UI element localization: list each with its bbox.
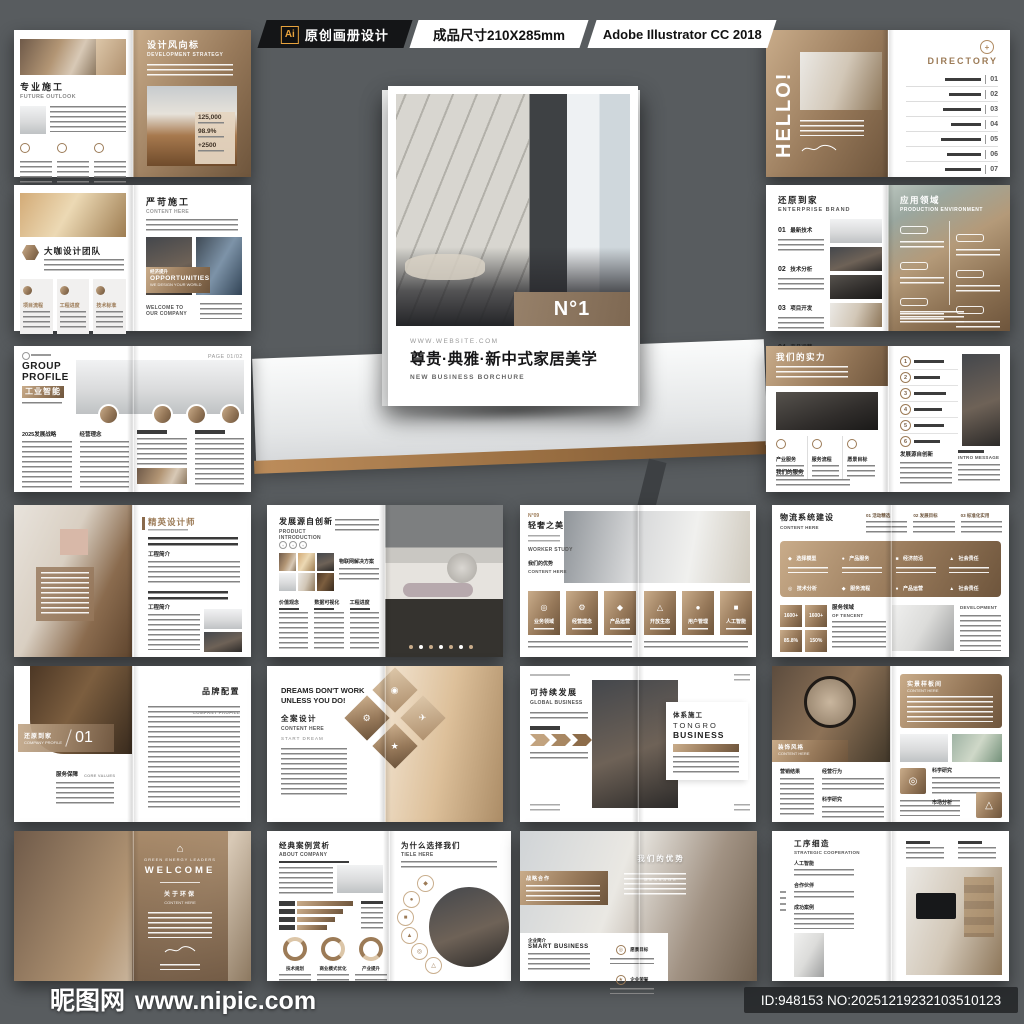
service-card: ⚙经营理念 xyxy=(566,591,598,635)
chart-bar xyxy=(297,917,335,922)
spread-smart-business: 战略合作 我们的优势 MESSAGE 企业简介 SMART BUSINESS ◎… xyxy=(520,831,757,981)
underline-bar xyxy=(279,861,349,863)
ribbon-original-design: Ai 原创画册设计 xyxy=(257,20,412,48)
item-number: 02 xyxy=(778,266,786,273)
system-title: 体系施工 xyxy=(673,709,741,719)
label-bar xyxy=(914,376,940,379)
text-lines xyxy=(842,567,882,573)
social-icon: ▲ xyxy=(949,586,954,592)
size-label: 成品尺寸210X285mm xyxy=(433,24,565,44)
feature-circle xyxy=(152,404,173,425)
dot xyxy=(429,645,433,649)
left-title-en: FUTURE OUTLOOK xyxy=(20,94,76,101)
group-title-line1: GROUP xyxy=(22,361,61,372)
exterior-photo xyxy=(952,734,1002,762)
star-icon: ★ xyxy=(391,740,399,751)
ai-icon: ■ xyxy=(734,603,739,612)
column-label: 愿景目标 xyxy=(847,456,878,463)
users-icon: ● xyxy=(696,603,701,612)
text-lines xyxy=(281,748,347,796)
spread-decor-style: 装饰风格 CONTENT HERE 营销结果 经营行为 科学研究 实景样板间 C… xyxy=(772,666,1009,822)
label-bar xyxy=(947,153,981,156)
tech-icon: ▲ xyxy=(949,556,954,562)
standard-icon xyxy=(96,286,105,295)
full-photo-page xyxy=(385,505,503,657)
style-banner-cn: 装饰风格 xyxy=(778,743,842,751)
label-bar xyxy=(941,138,981,141)
text-lines xyxy=(788,567,828,573)
text-lines xyxy=(147,64,233,78)
card-label: 用户管理 xyxy=(682,618,714,625)
text-lines xyxy=(198,150,224,154)
number-circle: 4 xyxy=(900,404,911,415)
panel-label: 技术分析 xyxy=(797,586,817,592)
text-lines xyxy=(572,628,592,632)
right-page-brown: 应用领域 PRODUCTION ENVIRONMENT xyxy=(888,185,1010,331)
model-icon: ◆ xyxy=(788,556,792,562)
spread-welcome: ⌂ GREEN ENERGY LEADERS WELCOME 关于环保 CONT… xyxy=(14,831,251,981)
text-lines xyxy=(822,778,884,792)
field-title-en: PRODUCTION ENVIRONMENT xyxy=(900,207,983,213)
sub-bar xyxy=(279,608,299,610)
label-bar xyxy=(958,841,982,844)
photo-grid xyxy=(279,553,334,591)
service-icon: ■ xyxy=(896,556,899,562)
text-lines xyxy=(900,462,952,484)
spread-elite-designer: 精英设计师 工程简介 工程简介 xyxy=(14,505,251,657)
stat-value: 85.8% xyxy=(784,638,798,644)
ribbon-size: 成品尺寸210X285mm xyxy=(409,20,588,48)
text-lines xyxy=(530,712,588,722)
left-title-cn: 专业施工 xyxy=(20,82,64,93)
plus-circle-icon: + xyxy=(279,541,287,549)
bright-room-photo xyxy=(204,609,242,629)
reception-photo xyxy=(20,193,126,237)
text-lines xyxy=(22,441,72,489)
card-label: 产品运营 xyxy=(604,618,636,625)
pillow-highlight xyxy=(405,254,485,280)
artwork-square xyxy=(60,529,88,555)
welcome-text: WELCOME TO OUR COMPANY xyxy=(146,305,196,318)
donut-label: 产业提升 xyxy=(355,966,387,972)
living-photo xyxy=(830,303,882,327)
spread-product-introduction: 发展源自创新 PRODUCT INTRODUCTION + + + 物联网解决方… xyxy=(267,505,503,657)
text-lines xyxy=(822,806,884,820)
analysis-icon: ◎ xyxy=(788,586,792,592)
field-title-cn: 应用领域 xyxy=(900,195,940,206)
worker-study: WORKER STUDY xyxy=(528,547,573,553)
text-lines xyxy=(355,974,387,982)
text-lines xyxy=(896,567,936,573)
text-lines xyxy=(528,641,632,651)
timeline-left xyxy=(900,221,944,321)
dot xyxy=(409,645,413,649)
product-label: 原创画册设计 xyxy=(305,25,389,44)
tick xyxy=(780,903,786,905)
column-label: 技术标准 xyxy=(96,302,123,309)
donut-chart xyxy=(321,937,345,961)
tv-room-photo xyxy=(906,867,1002,975)
text-lines xyxy=(726,628,746,632)
text-lines xyxy=(832,621,886,651)
text-lines xyxy=(148,561,240,585)
spread-company-profile-01: 还原到家COMPANY PROFILE 01 服务保障 CORE VALUES … xyxy=(14,666,251,822)
text-lines xyxy=(317,974,349,982)
item-number: 01 xyxy=(778,227,786,234)
directory-number: 07 xyxy=(990,166,998,173)
product-icon: ◆ xyxy=(617,603,623,612)
spread-logistics-system: 物流系统建设 CONTENT HERE 01 活动精选 02 发展目标 03 标… xyxy=(772,505,1009,657)
text-lines xyxy=(776,366,848,380)
tick xyxy=(780,891,786,893)
plus-circle-icon: + xyxy=(289,541,297,549)
banner-en: COMPANY PROFILE xyxy=(24,740,62,745)
industry-icon xyxy=(776,439,786,449)
content-here: CONTENT HERE xyxy=(281,726,324,732)
text-lines xyxy=(610,958,654,964)
text-lines xyxy=(530,804,560,812)
card-label: 经营理念 xyxy=(566,618,598,625)
science-label: 科学研究 xyxy=(932,768,952,774)
arrow-shape xyxy=(551,734,571,746)
bathroom-dark-photo xyxy=(962,354,1000,446)
text-lines xyxy=(23,311,50,331)
section-title: 工程简介 xyxy=(148,552,170,559)
small-photo xyxy=(137,468,187,484)
spread-design-team: 大咖设计团队 项目流程 工程进度 技术标准 严苛施工 CONTENT HERE … xyxy=(14,185,251,331)
translucent-text-box xyxy=(36,567,94,621)
column-header: 数据可视化 xyxy=(314,599,343,606)
three-columns: 项目流程 工程进度 技术标准 xyxy=(20,279,126,334)
feature-bubble: ◆ xyxy=(417,875,434,892)
text-lines xyxy=(160,964,200,970)
panel-label: 产品服务 xyxy=(849,556,869,562)
content-here: CONTENT HERE xyxy=(132,900,228,905)
gradient-bar xyxy=(673,744,739,752)
text-lines xyxy=(20,161,52,183)
text-lines xyxy=(794,913,854,929)
duty-icon: ● xyxy=(842,556,845,562)
iot-title: 物联网解决方案 xyxy=(339,559,374,565)
right-title-en: DEVELOPMENT STRATEGY xyxy=(147,52,223,58)
rule-bar xyxy=(530,674,570,676)
directory-row: 04 xyxy=(906,117,998,132)
brand-line2: BUSINESS xyxy=(673,730,741,740)
text-lines xyxy=(961,521,1002,533)
sub-bar xyxy=(350,608,370,610)
timeline-axis xyxy=(949,221,950,305)
team-title-cn: 大咖设计团队 xyxy=(44,246,101,257)
text-lines xyxy=(534,628,554,632)
text-lines xyxy=(788,597,828,603)
text-lines xyxy=(137,438,187,466)
image-id-bar: ID:948153 NO:20251219232103510123 xyxy=(744,987,1018,1013)
directory-title: DIRECTORY xyxy=(906,56,998,67)
panel-label: 社会责任 xyxy=(959,586,979,592)
grid-photo xyxy=(279,573,296,591)
top-item-label: 01 活动精选 xyxy=(866,513,907,519)
directory-row: 07 xyxy=(906,162,998,176)
grid-photo xyxy=(298,573,315,591)
style-banner: 装饰风格 CONTENT HERE xyxy=(772,740,848,762)
number-circle: 2 xyxy=(900,372,911,383)
stat-squares: 1600+ 1600+ 85.8% 150% xyxy=(780,605,827,652)
spread-our-strength: 我们的实力 产业服务 服务流程 愿景目标 我们的服务 1 2 3 4 5 6 发… xyxy=(766,346,1010,492)
spread-process-crafting: 工序细造 STRATEGIC COOPERATION 人工智能 合作伙伴 成功案… xyxy=(772,831,1009,981)
text-lines xyxy=(610,628,630,632)
dot xyxy=(459,645,463,649)
dot xyxy=(439,645,443,649)
donut-charts: 技术规划 商业模式优化 产业提升 xyxy=(279,937,387,982)
text-lines xyxy=(956,249,1000,257)
text-lines xyxy=(94,161,126,183)
innovation-title: 发展源自创新 xyxy=(900,452,933,459)
core-values-cn: 服务保障 xyxy=(56,772,78,779)
feature-panel: ◆ 选择模型 ● 产品服务 ■ 经济前沿 ▲ 社会责任 ◎ 技术分析 ◆ 服务流… xyxy=(780,541,1001,597)
banner-cn: 还原到家 xyxy=(24,731,62,740)
panel-label: 选择模型 xyxy=(796,556,816,562)
chart-bar xyxy=(297,925,327,930)
spread-classic-cases: 经典案例赏析 ABOUT COMPANY 技术规划 商业模式优化 产业提升 为什… xyxy=(267,831,511,981)
stat-square: 150% xyxy=(805,630,827,652)
feature-circle xyxy=(220,404,241,425)
text-lines xyxy=(335,519,379,533)
interior-photo xyxy=(900,734,948,762)
arrow-shape xyxy=(530,734,550,746)
logistics-title-cn: 物流系统建设 xyxy=(780,513,834,523)
vision-label: 愿景目标 xyxy=(630,947,648,952)
text-lines xyxy=(50,106,126,132)
process-title-en: STRATEGIC COOPERATION xyxy=(794,850,860,856)
grid-photo xyxy=(279,553,296,571)
cover-number-badge: N°1 xyxy=(514,292,630,326)
three-columns xyxy=(20,140,126,183)
flow-icon: ◆ xyxy=(842,586,846,592)
eco-icon: △ xyxy=(657,603,663,612)
text-lines xyxy=(624,873,686,897)
text-lines xyxy=(734,804,750,812)
logo-bar xyxy=(31,354,51,356)
text-lines xyxy=(60,311,87,331)
spread-light-luxury: N°09 轻奢之美 WORKER STUDY 我们的优势 CONTENT HER… xyxy=(520,505,756,657)
watermark-site-name: 昵图网 xyxy=(50,986,125,1017)
feature-bubble: ▲ xyxy=(401,927,418,944)
feature-circle xyxy=(186,404,207,425)
stat-square: 85.8% xyxy=(780,630,802,652)
style-banner-en: CONTENT HERE xyxy=(778,751,842,756)
label-bar xyxy=(945,168,981,171)
bedroom-photo xyxy=(800,52,882,110)
panel-item: ● 产品服务 xyxy=(842,547,886,573)
column-label: 服务流程 xyxy=(812,456,843,463)
text-lines xyxy=(314,612,343,652)
text-lines xyxy=(148,706,240,810)
label-bar xyxy=(906,841,930,844)
card-label: 人工智能 xyxy=(720,618,752,625)
stairs-shape xyxy=(964,877,994,937)
staircase-photo: 125,000 98.9% +2500 xyxy=(147,86,237,166)
full-case-design: 全案设计 xyxy=(281,714,317,723)
round-mirror xyxy=(447,553,477,583)
brochure-cover-mockup: N°1 WWW.WEBSITE.COM 尊贵·典雅·新中式家居美学 NEW BU… xyxy=(388,86,638,406)
brand-title-cn: 还原到家 xyxy=(778,195,818,206)
service-section-title: 我们的服务 xyxy=(776,470,804,477)
text-lines xyxy=(350,612,379,652)
text-lines xyxy=(361,907,383,929)
luxury-title: 轻奢之美 xyxy=(528,521,564,531)
column-header: 科学研究 xyxy=(822,796,884,803)
timeline-pill xyxy=(900,226,928,234)
top-right-columns: 01 活动精选 02 发展目标 03 标准化实用 xyxy=(866,513,1002,533)
spread-future-outlook: 专业施工 FUTURE OUTLOOK 设计风向标 DEVELOPMENT ST… xyxy=(14,30,251,177)
number-circle: 6 xyxy=(900,436,911,447)
chart-bar xyxy=(297,909,343,914)
text-lines xyxy=(778,317,824,331)
watermark-site-url: www.nipic.com xyxy=(135,986,316,1017)
watermark: 昵图网 www.nipic.com xyxy=(50,986,316,1017)
card-label: 开放生态 xyxy=(644,618,676,625)
timeline-pill xyxy=(956,270,984,278)
tick xyxy=(780,909,786,911)
text-lines xyxy=(794,869,854,879)
stat-square: 1600+ xyxy=(780,605,802,627)
issue-number: N°09 xyxy=(528,513,539,519)
process-title-cn: 工序细造 xyxy=(794,839,830,848)
profile-banner: 还原到家COMPANY PROFILE 01 xyxy=(18,724,114,752)
cover-title: 尊贵·典雅·新中式家居美学 xyxy=(410,350,597,369)
small-photo xyxy=(20,106,46,134)
design-showcase-canvas: Ai 原创画册设计 成品尺寸210X285mm Adobe Illustrato… xyxy=(0,0,1024,1024)
directory-number: 06 xyxy=(990,151,998,158)
pavilion-logo-icon: ⌂ xyxy=(132,843,228,855)
column-header: 营销结果 xyxy=(780,768,814,775)
label-bar xyxy=(914,408,942,411)
service-icon xyxy=(812,439,822,449)
icon-grid-panel xyxy=(96,39,126,75)
text-lines xyxy=(780,778,814,818)
text-lines xyxy=(776,479,850,487)
bold-text-lines xyxy=(148,537,238,548)
vision-icon xyxy=(847,439,857,449)
column-header: 经营行为 xyxy=(822,768,884,775)
opportunities-sub: WE DESIGN YOUR WORLD xyxy=(150,282,206,287)
loft-photo xyxy=(564,511,750,583)
software-label: Adobe Illustrator CC 2018 xyxy=(603,27,762,42)
advantage-cn: 我们的优势 xyxy=(637,854,685,863)
chart-chip xyxy=(279,917,295,922)
gear-icon: ⚙ xyxy=(363,712,371,723)
vision-icon: ◎ xyxy=(616,945,626,955)
column-header: 价值观念 xyxy=(279,599,308,606)
business-icon: ◎ xyxy=(541,603,548,612)
image-id-text: ID:948153 NO:20251219232103510123 xyxy=(761,993,1001,1008)
section-cases: 成功案例 xyxy=(794,905,814,911)
label-bar xyxy=(945,78,981,81)
text-lines xyxy=(949,597,989,603)
panel-label: 服务流程 xyxy=(850,586,870,592)
service-card: ■人工智能 xyxy=(720,591,752,635)
service-card: △开放生态 xyxy=(644,591,676,635)
directory-row: 05 xyxy=(906,132,998,147)
label-bar xyxy=(951,123,981,126)
text-lines xyxy=(812,465,840,479)
moon-mirror xyxy=(804,676,856,728)
panel-item: ▲ 社会责任 xyxy=(949,547,993,573)
logistics-title-en: CONTENT HERE xyxy=(780,525,819,531)
text-lines xyxy=(96,311,123,331)
top-item-label: 02 发展目标 xyxy=(913,513,954,519)
window-photo xyxy=(830,219,882,243)
dot xyxy=(419,645,423,649)
photo-collage: 经济提升 OPPORTUNITIES WE DESIGN YOUR WORLD xyxy=(146,237,242,295)
label-bar xyxy=(949,93,981,96)
kitchen-photo xyxy=(776,392,878,430)
top-item-label: 03 标准化实用 xyxy=(961,513,1002,519)
target-icon: ◎ xyxy=(909,776,918,787)
dreams-heading: DREAMS DON'T WORK UNLESS YOU DO! xyxy=(281,686,364,706)
hello-vertical-text: HELLO! xyxy=(772,46,797,158)
text-lines xyxy=(339,568,379,582)
text-lines xyxy=(907,696,993,722)
dark-bedroom-photo xyxy=(204,632,242,652)
text-lines xyxy=(148,529,188,534)
text-lines xyxy=(148,614,200,650)
triangle-icon: △ xyxy=(985,800,993,811)
text-lines xyxy=(526,885,600,901)
chart-chip xyxy=(279,925,295,930)
living-photo xyxy=(337,865,383,893)
sub-bar xyxy=(314,608,334,610)
brand-config-cn: 品牌配置 xyxy=(202,687,240,696)
text-lines xyxy=(778,239,824,253)
text-lines xyxy=(960,615,1001,651)
industry-chip: 工业智能 xyxy=(22,386,64,398)
small-stairs-photo xyxy=(794,933,824,977)
text-lines xyxy=(734,674,750,682)
sustainable-title-cn: 可持续发展 xyxy=(530,688,578,698)
cooperation-label: 战略合作 xyxy=(526,875,602,882)
item-label: 技术分析 xyxy=(790,267,812,273)
product-title-en: PRODUCT INTRODUCTION xyxy=(279,529,331,542)
divider xyxy=(160,882,200,883)
section-ai: 人工智能 xyxy=(794,861,814,867)
panel-label: 产品运营 xyxy=(903,586,923,592)
dreams-line1: DREAMS DON'T WORK xyxy=(281,686,364,695)
ribbon-software: Adobe Illustrator CC 2018 xyxy=(587,20,776,48)
text-lines xyxy=(866,521,907,533)
circle-icon xyxy=(20,143,30,153)
item-label: 最新技术 xyxy=(790,228,812,234)
why-us-title-cn: 为什么选择我们 xyxy=(401,841,461,850)
right-title-en: CONTENT HERE xyxy=(146,209,189,215)
cases-title-en: ABOUT COMPANY xyxy=(279,852,327,858)
stat-square: 1600+ xyxy=(805,605,827,627)
right-page-brown: 设计风向标 DEVELOPMENT STRATEGY 125,000 98.9%… xyxy=(133,30,251,177)
advantage-label: 我们的优势 xyxy=(528,561,553,567)
text-lines xyxy=(688,628,708,632)
section-title: 工程简介 xyxy=(148,605,170,612)
label-bar xyxy=(958,450,984,453)
directory-number: 02 xyxy=(990,91,998,98)
section-partners: 合作伙伴 xyxy=(794,883,814,889)
directory-row: 03 xyxy=(906,102,998,117)
text-lines xyxy=(900,311,964,323)
group-title-line2: PROFILE xyxy=(22,372,69,383)
label-bar xyxy=(530,726,560,730)
label-bar xyxy=(361,901,383,904)
progress-icon xyxy=(60,286,69,295)
text-lines xyxy=(528,535,560,543)
